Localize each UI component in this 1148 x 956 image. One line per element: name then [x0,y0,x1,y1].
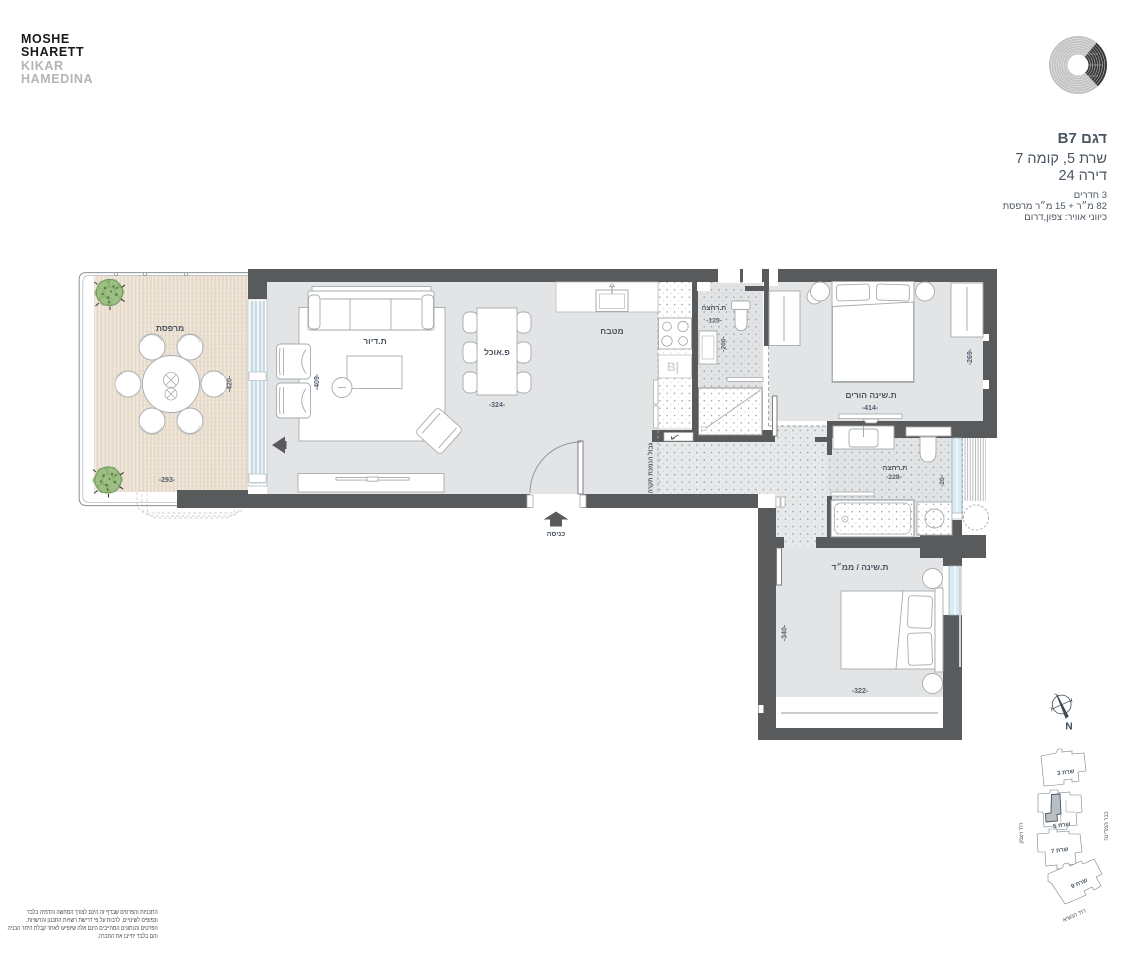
svg-text:-414-: -414- [862,405,879,412]
svg-text:-200-: -200- [721,336,728,352]
svg-text:-269-: -269- [967,348,974,365]
svg-text:גבול הנמכת תקרה: גבול הנמכת תקרה [647,443,655,494]
svg-text:ת.שינה / ממ״ד: ת.שינה / ממ״ד [832,562,889,572]
svg-text:-20-: -20- [939,475,946,487]
svg-text:ת.רחצה: ת.רחצה [883,465,908,472]
svg-text:-322-: -322- [852,688,869,695]
svg-text:ככר המדינה: ככר המדינה [1104,811,1110,840]
svg-text:N: N [1065,722,1072,733]
svg-text:ת.דיור: ת.דיור [363,336,386,346]
svg-text:שרת 5: שרת 5 [1053,822,1071,830]
svg-text:-340-: -340- [782,624,789,641]
svg-text:-228-: -228- [886,474,902,481]
svg-text:-409-: -409- [314,373,321,390]
svg-text:-324-: -324- [489,402,506,409]
svg-text:כניסה: כניסה [547,531,566,538]
svg-text:רח' הנשיא: רח' הנשיא [1062,908,1087,924]
svg-text:פ.אוכל: פ.אוכל [484,347,510,357]
svg-text:מטבח: מטבח [600,326,623,336]
svg-text:-125-: -125- [706,318,722,325]
svg-text:ת.שינה הורים: ת.שינה הורים [845,390,896,400]
svg-text:רח' ויצמן: רח' ויצמן [1019,822,1025,843]
svg-text:B|: B| [667,360,679,374]
svg-text:-420-: -420- [227,375,234,392]
svg-text:מרפסת: מרפסת [156,323,184,333]
svg-text:ת.רחצה: ת.רחצה [702,305,727,312]
svg-text:-293-: -293- [159,477,176,484]
